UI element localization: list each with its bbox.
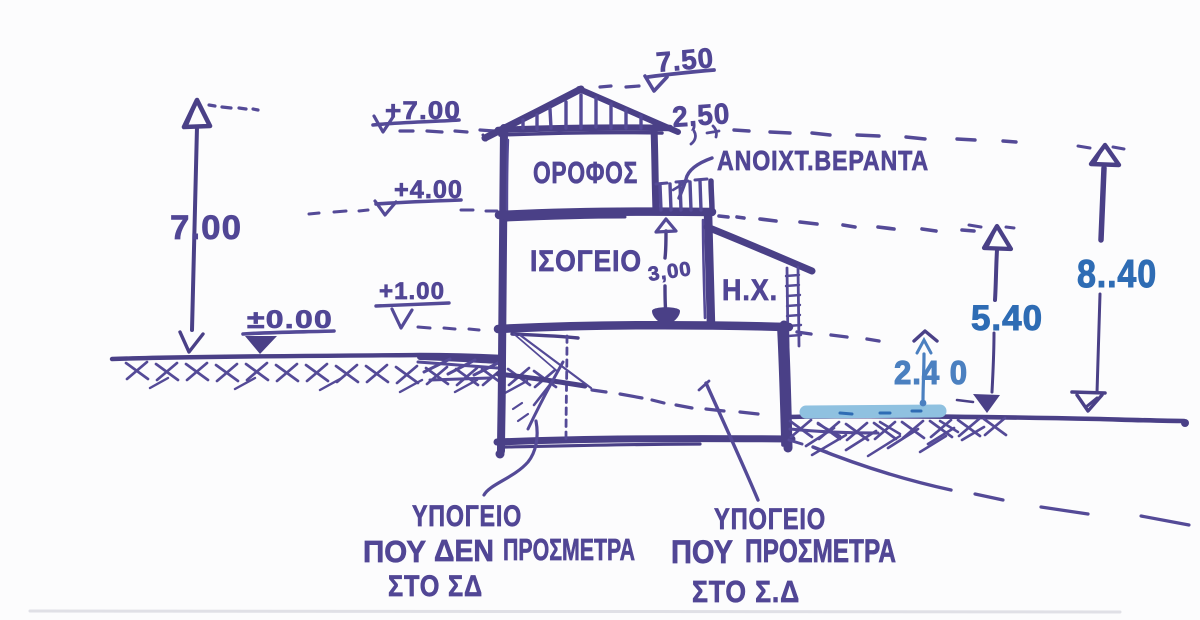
svg-text:ΣΤΟ ΣΔ: ΣΤΟ ΣΔ: [388, 570, 483, 603]
svg-text:ΔΕΝ: ΔΕΝ: [434, 533, 494, 568]
svg-text:+1.00: +1.00: [379, 278, 445, 305]
svg-text:ΥΠΟΓΕΙΟ: ΥΠΟΓΕΙΟ: [412, 500, 522, 533]
svg-text:ΙΣΟΓΕΙΟ: ΙΣΟΓΕΙΟ: [530, 245, 642, 278]
svg-text:ΑΝΟΙΧΤ.ΒΕΡΑΝΤΑ: ΑΝΟΙΧΤ.ΒΕΡΑΝΤΑ: [717, 145, 929, 176]
svg-text:ΣΤΟ Σ.Δ: ΣΤΟ Σ.Δ: [692, 574, 800, 609]
svg-text:ΠΟΥ: ΠΟΥ: [671, 534, 733, 570]
svg-text:ΠΡΟΣΜΕΤΡΑ: ΠΡΟΣΜΕΤΡΑ: [503, 532, 635, 567]
svg-text:ΠΡΟΣΜΕΤΡΑ: ΠΡΟΣΜΕΤΡΑ: [745, 533, 896, 569]
svg-text:7.00: 7.00: [170, 209, 242, 247]
svg-text:Η.Χ.: Η.Χ.: [722, 274, 778, 307]
svg-text:5.40: 5.40: [971, 299, 1043, 338]
svg-text:2,50: 2,50: [671, 98, 731, 134]
svg-text:ΟΡΟΦΟΣ: ΟΡΟΦΟΣ: [533, 155, 638, 190]
svg-text:ΥΠΟΓΕΙΟ: ΥΠΟΓΕΙΟ: [714, 503, 826, 536]
svg-text:ΠΟΥ: ΠΟΥ: [363, 534, 426, 569]
svg-text:8..40: 8..40: [1077, 253, 1157, 296]
svg-text:2.4 0: 2.4 0: [894, 354, 968, 391]
